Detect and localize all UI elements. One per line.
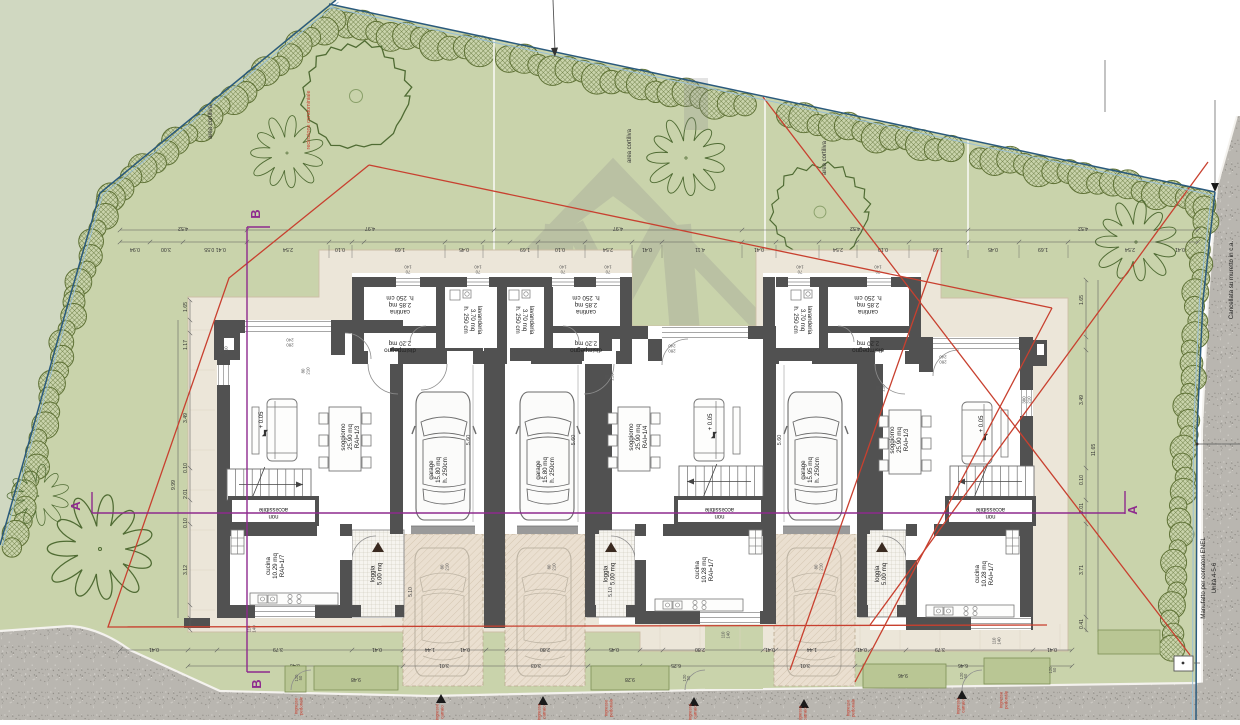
svg-text:h. 250 cm: h. 250 cm — [854, 294, 881, 301]
svg-text:cucina: cucina — [694, 561, 701, 579]
svg-text:5.60: 5.60 — [571, 435, 577, 446]
svg-text:+ 0.05: + 0.05 — [708, 413, 714, 431]
svg-text:0.41: 0.41 — [642, 246, 652, 252]
svg-text:0.10: 0.10 — [555, 246, 565, 252]
svg-text:5.00 mq: 5.00 mq — [610, 562, 617, 585]
svg-text:5.10: 5.10 — [608, 587, 614, 597]
svg-text:0.41: 0.41 — [857, 646, 867, 652]
svg-text:50: 50 — [1052, 667, 1057, 672]
svg-text:0.10: 0.10 — [1079, 475, 1085, 485]
svg-text:210: 210 — [609, 373, 614, 381]
svg-text:240: 240 — [286, 338, 294, 343]
svg-text:210: 210 — [880, 384, 885, 392]
svg-text:140: 140 — [874, 265, 882, 270]
svg-text:3.79: 3.79 — [273, 646, 283, 652]
svg-text:area cortiliva: area cortiliva — [627, 128, 633, 163]
svg-text:0.41: 0.41 — [372, 646, 382, 652]
svg-text:h. 250 cm: h. 250 cm — [792, 306, 799, 333]
svg-text:0.45: 0.45 — [609, 646, 619, 652]
svg-text:15.80 mq: 15.80 mq — [435, 457, 442, 483]
svg-text:1.17: 1.17 — [183, 340, 189, 350]
svg-text:2.85 mq: 2.85 mq — [856, 301, 879, 308]
svg-text:h. 250 cm: h. 250 cm — [462, 306, 469, 333]
svg-text:area cortiliva: area cortiliva — [208, 104, 214, 139]
svg-text:210: 210 — [551, 563, 556, 571]
svg-text:cucina: cucina — [265, 557, 272, 575]
svg-text:RAI=1/7: RAI=1/7 — [708, 558, 715, 581]
svg-text:5.00 mq: 5.00 mq — [881, 562, 888, 585]
svg-text:h. 250 cm: h. 250 cm — [386, 294, 413, 301]
svg-text:B: B — [248, 209, 263, 218]
svg-text:recinzione condominiale: recinzione condominiale — [306, 90, 312, 149]
svg-text:4.52: 4.52 — [850, 225, 860, 231]
svg-text:240: 240 — [939, 355, 947, 360]
svg-text:10.28 mq: 10.28 mq — [981, 561, 988, 587]
svg-text:140: 140 — [725, 631, 730, 639]
svg-text:6.46: 6.46 — [958, 662, 968, 668]
svg-text:140: 140 — [559, 265, 567, 270]
svg-text:2.54: 2.54 — [1125, 246, 1135, 252]
svg-text:2.54: 2.54 — [833, 246, 843, 252]
svg-text:3.79: 3.79 — [935, 646, 945, 652]
svg-text:h. 250cm: h. 250cm — [549, 457, 556, 482]
svg-text:3.70 mq: 3.70 mq — [799, 309, 806, 332]
svg-text:1.44: 1.44 — [425, 646, 435, 652]
svg-text:0.41: 0.41 — [460, 646, 470, 652]
svg-text:soggiorno: soggiorno — [889, 426, 896, 454]
svg-text:210: 210 — [223, 346, 228, 354]
svg-text:50: 50 — [298, 675, 303, 680]
svg-text:pedonale: pedonale — [1003, 690, 1008, 709]
svg-text:11.65: 11.65 — [1091, 444, 1097, 457]
svg-text:0.45: 0.45 — [988, 246, 998, 252]
svg-text:0.10: 0.10 — [335, 246, 345, 252]
svg-text:210: 210 — [305, 367, 310, 375]
svg-text:2.20 mq: 2.20 mq — [856, 340, 879, 347]
svg-text:4.52: 4.52 — [1078, 225, 1088, 231]
svg-text:0.41: 0.41 — [765, 646, 775, 652]
svg-text:25.90 mq: 25.90 mq — [347, 424, 354, 450]
svg-text:h. 250 cm: h. 250 cm — [572, 294, 599, 301]
svg-text:2.85 mq: 2.85 mq — [574, 301, 597, 308]
svg-text:140: 140 — [604, 265, 612, 270]
svg-text:Cancellata su muretto in c.a.: Cancellata su muretto in c.a. — [1228, 241, 1235, 320]
svg-text:Unità 4-5-6: Unità 4-5-6 — [1211, 562, 1218, 593]
svg-text:2.01: 2.01 — [183, 489, 189, 499]
svg-text:soggiorno: soggiorno — [340, 423, 347, 451]
svg-text:loggia: loggia — [602, 565, 609, 582]
svg-text:140: 140 — [996, 637, 1001, 645]
svg-text:210: 210 — [818, 563, 823, 571]
svg-text:1.69: 1.69 — [395, 246, 405, 252]
svg-text:0.94: 0.94 — [130, 246, 140, 252]
svg-text:lavanderia: lavanderia — [806, 306, 813, 335]
svg-text:3.49: 3.49 — [183, 413, 189, 423]
svg-text:6.25: 6.25 — [671, 662, 681, 668]
svg-text:9.28: 9.28 — [625, 676, 635, 682]
svg-text:+ 0.05: + 0.05 — [259, 411, 265, 429]
svg-text:carraio: carraio — [960, 699, 965, 713]
svg-text:area cortiliva: area cortiliva — [822, 140, 828, 175]
svg-text:carraio: carraio — [802, 707, 807, 720]
svg-text:cantina: cantina — [575, 308, 596, 315]
svg-text:1.44: 1.44 — [807, 646, 817, 652]
svg-text:2.20 mq: 2.20 mq — [388, 340, 411, 347]
svg-text:3.01: 3.01 — [439, 662, 449, 668]
svg-text:1.65: 1.65 — [183, 302, 189, 312]
svg-text:carraio: carraio — [439, 705, 444, 719]
svg-text:accessibile: accessibile — [258, 506, 288, 512]
svg-text:140: 140 — [474, 265, 482, 270]
svg-text:disimpegno: disimpegno — [570, 347, 602, 354]
svg-text:0.10: 0.10 — [183, 463, 189, 473]
svg-text:0.41: 0.41 — [1047, 646, 1057, 652]
svg-text:4.97: 4.97 — [365, 225, 375, 231]
svg-text:3.70 mq: 3.70 mq — [469, 309, 476, 332]
svg-text:2.80: 2.80 — [695, 646, 705, 652]
svg-text:9.46: 9.46 — [898, 672, 908, 678]
svg-text:carraio: carraio — [692, 705, 697, 719]
svg-text:accessibile: accessibile — [975, 506, 1005, 512]
svg-text:garage: garage — [535, 460, 542, 480]
svg-text:pedonale: pedonale — [298, 696, 303, 715]
svg-text:carraio: carraio — [541, 705, 546, 719]
svg-text:140: 140 — [796, 265, 804, 270]
svg-text:Manufatto per contatori ENEL: Manufatto per contatori ENEL — [1200, 537, 1207, 619]
svg-text:+ 0.05: + 0.05 — [979, 415, 985, 433]
svg-text:0.41: 0.41 — [149, 646, 159, 652]
svg-text:3.70 mq: 3.70 mq — [521, 309, 528, 332]
svg-text:240: 240 — [668, 344, 676, 349]
svg-text:accessibile: accessibile — [704, 506, 734, 512]
svg-text:lavanderia: lavanderia — [528, 306, 535, 335]
svg-text:h. 250cm: h. 250cm — [814, 457, 821, 482]
svg-text:RAI=1/4: RAI=1/4 — [642, 425, 649, 448]
svg-text:RAI=1/7: RAI=1/7 — [988, 562, 995, 585]
svg-text:140: 140 — [404, 265, 412, 270]
svg-text:0.41 0.55: 0.41 0.55 — [204, 246, 226, 252]
svg-text:2.54: 2.54 — [283, 246, 293, 252]
svg-text:lavanderia: lavanderia — [476, 306, 483, 335]
svg-text:RAI=1/3: RAI=1/3 — [354, 425, 361, 448]
svg-text:3.49: 3.49 — [1079, 395, 1085, 405]
svg-text:A: A — [1125, 505, 1140, 515]
svg-text:4.97: 4.97 — [613, 225, 623, 231]
svg-text:140: 140 — [251, 625, 256, 633]
svg-text:disimpegno: disimpegno — [852, 347, 884, 354]
svg-text:h. 250cm: h. 250cm — [442, 457, 449, 482]
svg-text:disimpegno: disimpegno — [384, 347, 416, 354]
svg-text:0.41: 0.41 — [1079, 619, 1085, 629]
svg-text:garage: garage — [428, 460, 435, 480]
svg-text:5.60: 5.60 — [466, 435, 472, 446]
svg-text:3.00: 3.00 — [161, 246, 171, 252]
svg-text:cucina: cucina — [974, 565, 981, 583]
svg-text:1.69: 1.69 — [1038, 246, 1048, 252]
svg-text:4.52: 4.52 — [178, 225, 188, 231]
svg-text:10.28 mq: 10.28 mq — [701, 557, 708, 583]
svg-text:cantina: cantina — [857, 308, 878, 315]
svg-text:210: 210 — [444, 563, 449, 571]
svg-text:cantina: cantina — [389, 308, 410, 315]
svg-text:5.00 mq: 5.00 mq — [377, 562, 384, 585]
svg-text:9.48: 9.48 — [351, 676, 361, 682]
svg-text:pedonale: pedonale — [850, 698, 855, 717]
svg-text:25.90 mq: 25.90 mq — [635, 424, 642, 450]
svg-text:50: 50 — [963, 673, 968, 678]
svg-text:9.99: 9.99 — [171, 480, 177, 490]
svg-text:15.80 mq: 15.80 mq — [542, 457, 549, 483]
svg-text:loggia: loggia — [369, 565, 376, 582]
svg-text:4.11: 4.11 — [695, 246, 705, 252]
svg-text:5.10: 5.10 — [408, 587, 414, 597]
svg-text:h. 250 cm: h. 250 cm — [514, 306, 521, 333]
svg-text:15.95 mq: 15.95 mq — [807, 457, 814, 483]
svg-text:RAI=1/7: RAI=1/7 — [279, 554, 286, 577]
svg-text:5.60: 5.60 — [777, 435, 783, 446]
svg-text:10.29 mq: 10.29 mq — [272, 553, 279, 579]
svg-text:A: A — [68, 501, 83, 511]
svg-text:2.85 mq: 2.85 mq — [388, 301, 411, 308]
svg-text:50: 50 — [686, 675, 691, 680]
svg-text:loggia: loggia — [874, 565, 881, 582]
svg-text:0.41: 0.41 — [1175, 246, 1185, 252]
svg-text:0.10: 0.10 — [183, 518, 189, 528]
svg-text:0.45: 0.45 — [459, 246, 469, 252]
svg-text:3.03: 3.03 — [531, 662, 541, 668]
svg-text:3.71: 3.71 — [1079, 565, 1085, 575]
svg-text:1.69: 1.69 — [520, 246, 530, 252]
svg-text:RAI=1/3: RAI=1/3 — [903, 428, 910, 451]
svg-text:3.01: 3.01 — [800, 662, 810, 668]
svg-text:2.80: 2.80 — [540, 646, 550, 652]
svg-text:2.20 mq: 2.20 mq — [574, 340, 597, 347]
svg-text:B: B — [249, 679, 264, 688]
svg-text:210: 210 — [1026, 396, 1031, 404]
svg-text:2.54: 2.54 — [603, 246, 613, 252]
svg-text:3.12: 3.12 — [183, 565, 189, 575]
svg-text:pedonale: pedonale — [608, 698, 613, 717]
svg-text:25.90 mq: 25.90 mq — [896, 427, 903, 453]
svg-text:1.65: 1.65 — [1079, 295, 1085, 305]
svg-text:garage: garage — [800, 460, 807, 480]
svg-text:soggiorno: soggiorno — [628, 423, 635, 451]
